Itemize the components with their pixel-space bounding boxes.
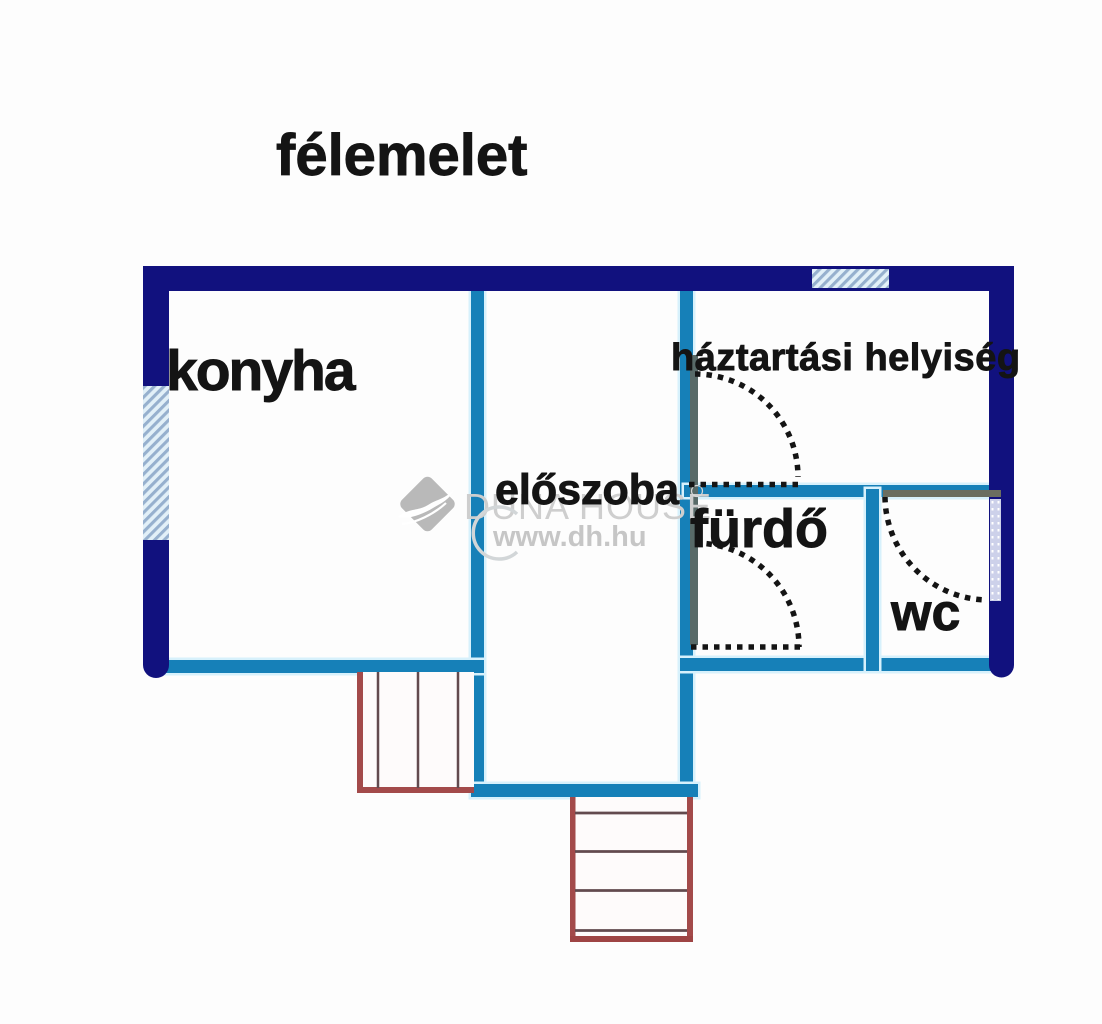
svg-text:fürdő: fürdő bbox=[690, 499, 828, 559]
svg-text:wc: wc bbox=[890, 584, 960, 642]
svg-text:konyha: konyha bbox=[166, 339, 357, 403]
svg-text:előszoba: előszoba bbox=[495, 466, 680, 514]
svg-text:www.dh.hu: www.dh.hu bbox=[492, 521, 647, 553]
svg-text:háztartási helyiség: háztartási helyiség bbox=[671, 337, 1021, 379]
svg-text:félemelet: félemelet bbox=[276, 123, 527, 188]
